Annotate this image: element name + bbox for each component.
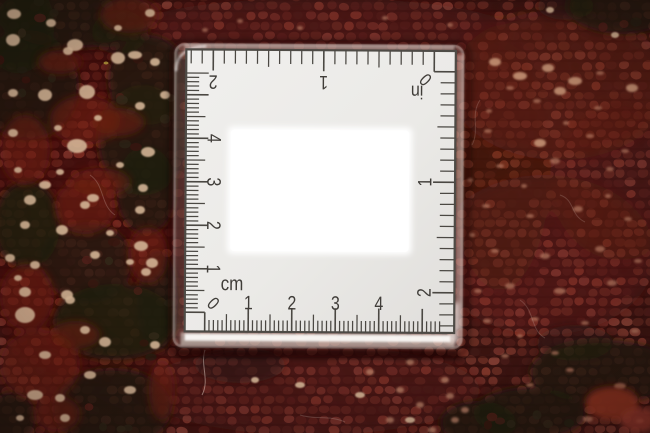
svg-text:1: 1 [414,178,436,187]
svg-text:2: 2 [413,288,435,297]
svg-text:1: 1 [319,72,328,94]
svg-text:2: 2 [209,71,218,93]
svg-text:cm: cm [221,272,244,295]
svg-text:3: 3 [331,292,340,314]
svg-text:2: 2 [203,221,225,230]
svg-text:in: in [411,81,424,103]
svg-text:1: 1 [244,292,253,314]
svg-text:1: 1 [202,264,224,273]
svg-text:2: 2 [287,292,296,314]
svg-text:3: 3 [203,177,225,186]
svg-text:4: 4 [203,134,225,143]
svg-text:4: 4 [374,293,383,315]
